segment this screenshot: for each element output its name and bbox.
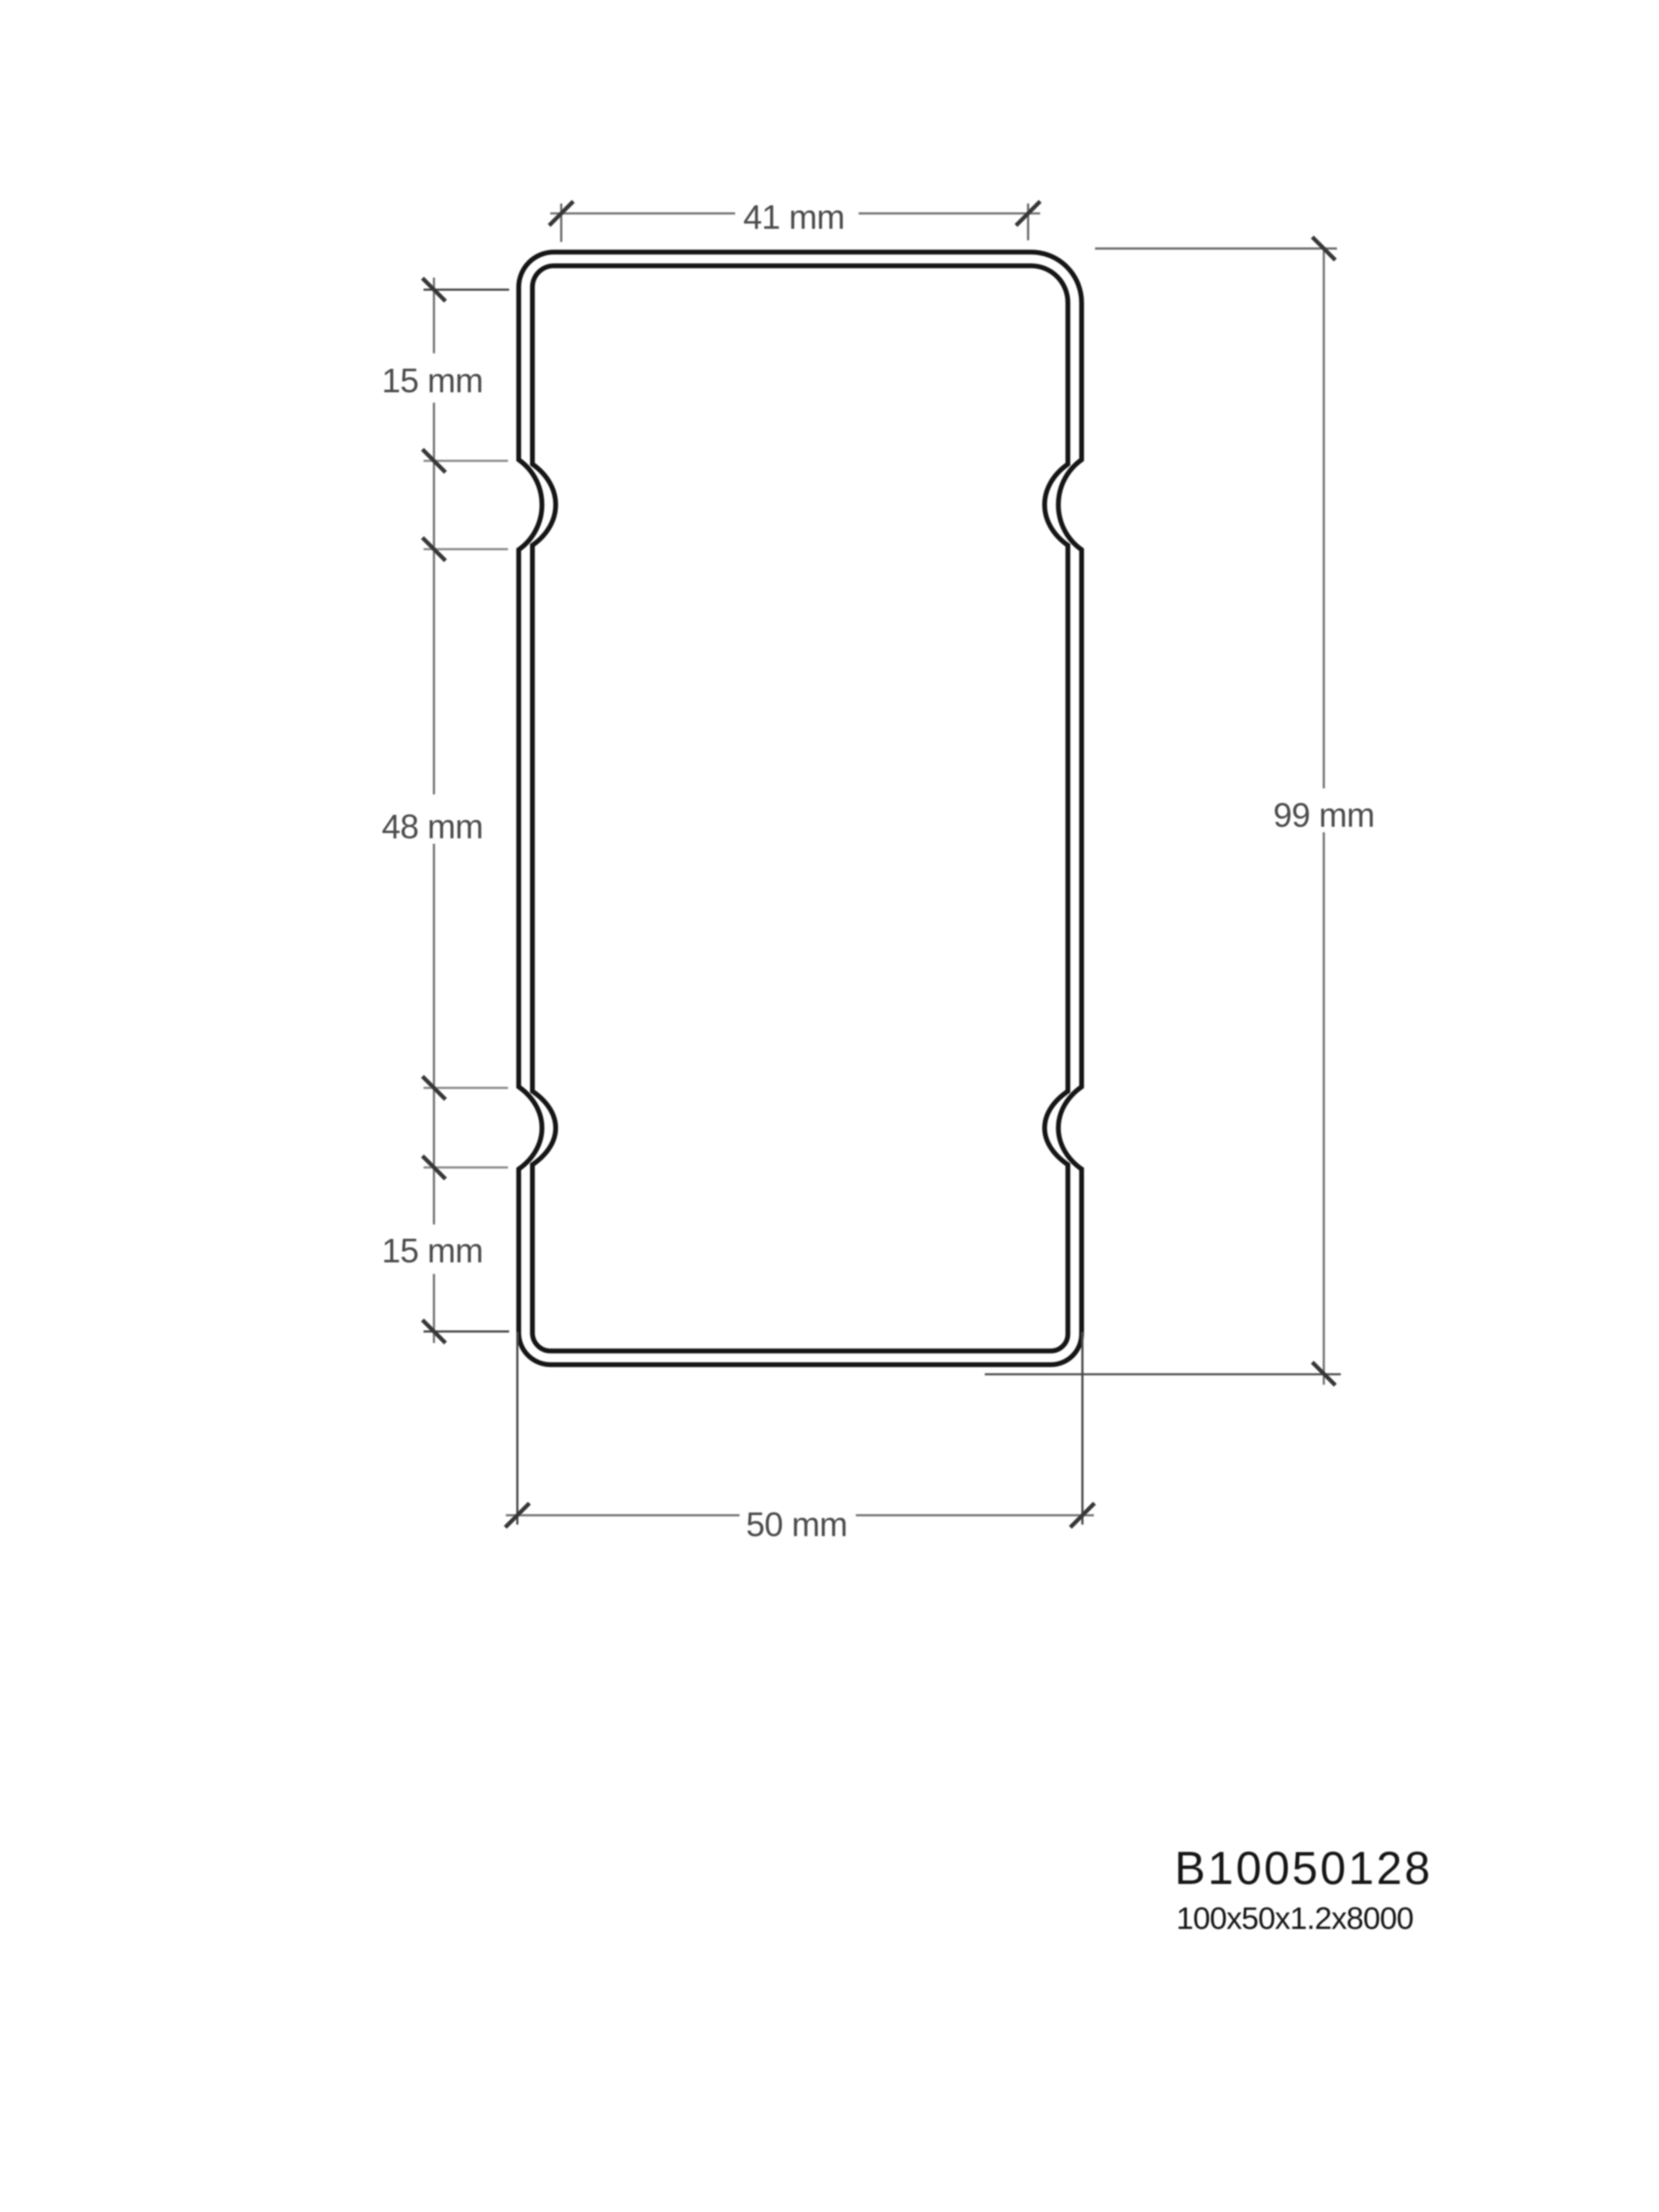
svg-text:15 mm: 15 mm: [382, 362, 483, 400]
svg-text:100x50x1.2x8000: 100x50x1.2x8000: [1176, 1901, 1413, 1936]
svg-text:15 mm: 15 mm: [382, 1232, 483, 1270]
svg-text:50 mm: 50 mm: [746, 1506, 847, 1544]
svg-text:99 mm: 99 mm: [1273, 797, 1374, 834]
svg-text:48 mm: 48 mm: [382, 808, 483, 846]
svg-text:B10050128: B10050128: [1175, 1842, 1432, 1894]
svg-text:41 mm: 41 mm: [743, 199, 844, 236]
